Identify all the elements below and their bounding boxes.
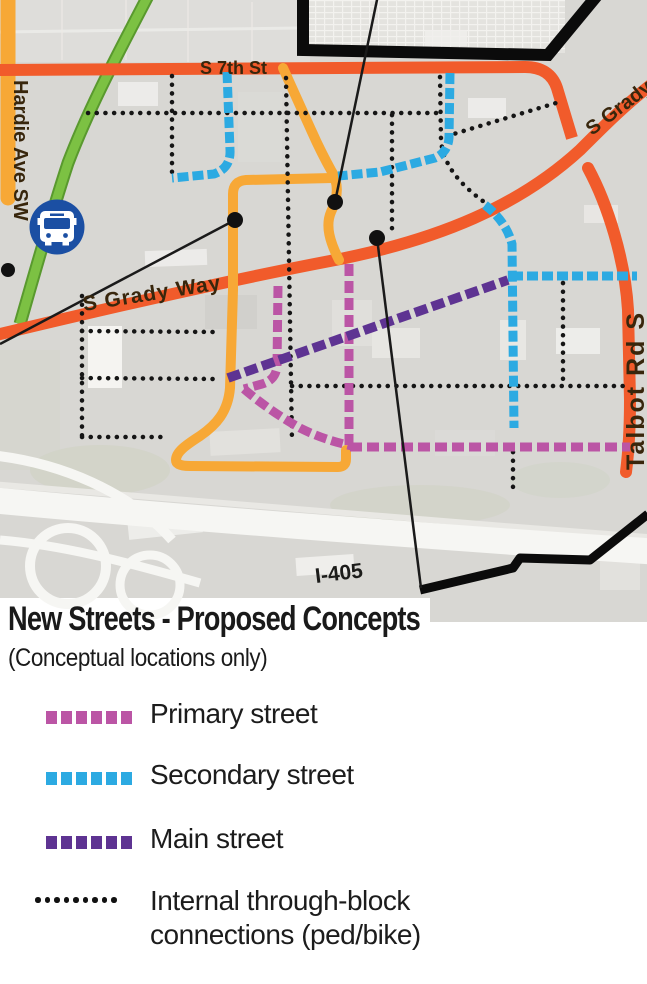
primary-street-swatch <box>46 711 135 724</box>
main-street-swatch <box>46 836 135 849</box>
talbot-rd-label: Talbot Rd S <box>622 311 647 470</box>
legend-label-internal-line1: Internal through-block <box>150 884 421 918</box>
proposed-streets-map: S 7th St S Grady Way S Grady Way Hardie … <box>0 0 647 622</box>
secondary-street-swatch <box>46 772 135 785</box>
map-base-extension <box>430 598 647 622</box>
internal-connections-swatch <box>35 897 117 903</box>
legend-label-internal-line2: connections (ped/bike) <box>150 918 421 952</box>
legend-label-primary: Primary street <box>150 697 317 731</box>
map-graphic: S 7th St S Grady Way S Grady Way Hardie … <box>0 0 647 622</box>
legend-title: New Streets - Proposed Concepts <box>8 600 420 639</box>
bus-icon <box>30 200 85 255</box>
page: S 7th St S Grady Way S Grady Way Hardie … <box>0 0 647 984</box>
s7th-street-label: S 7th St <box>200 58 267 78</box>
legend-subtitle: (Conceptual locations only) <box>8 644 267 673</box>
legend-label-internal: Internal through-block connections (ped/… <box>150 884 421 952</box>
hardie-ave-label: Hardie Ave SW <box>9 80 31 221</box>
legend-label-main: Main street <box>150 822 283 856</box>
legend-label-secondary: Secondary street <box>150 758 354 792</box>
